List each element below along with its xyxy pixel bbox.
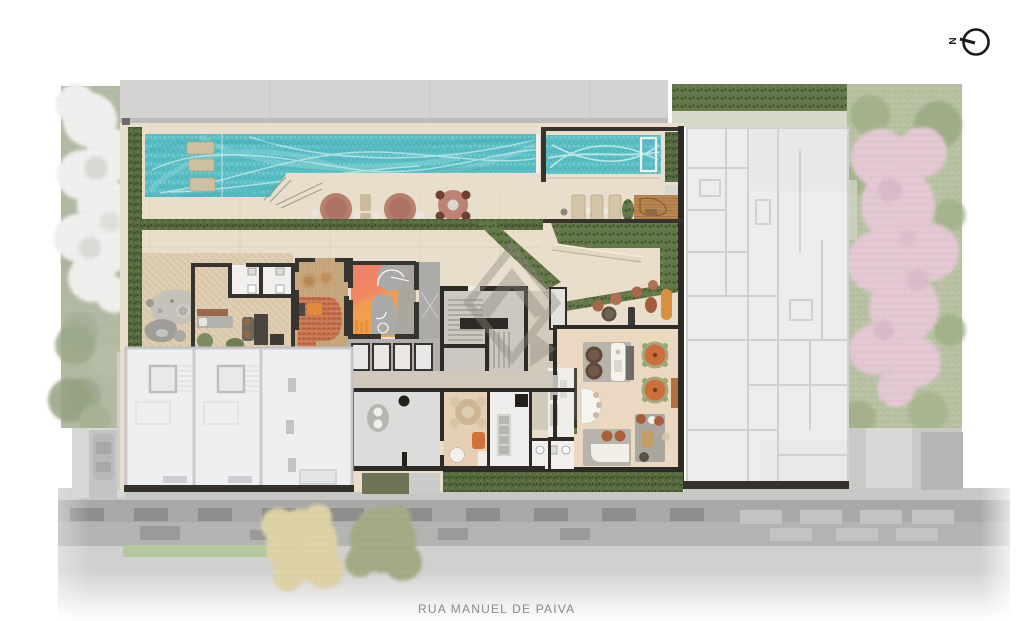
svg-text:N: N — [948, 37, 959, 44]
svg-text:RUA MANUEL DE PAIVA: RUA MANUEL DE PAIVA — [418, 602, 575, 616]
